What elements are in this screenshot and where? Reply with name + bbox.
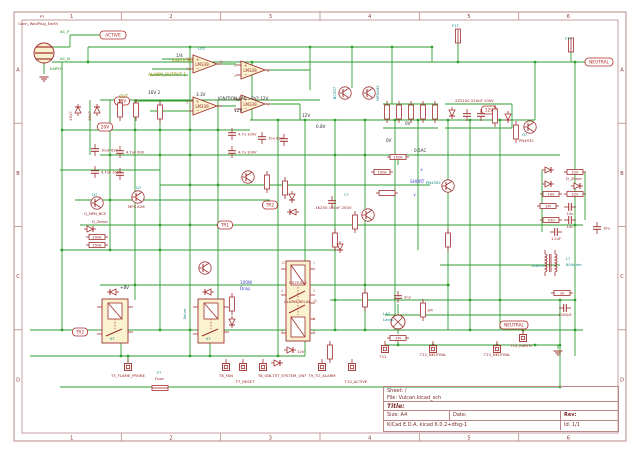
component-global-label[interactable]: NEUTRAL — [585, 58, 613, 66]
pin-number: 3 — [186, 101, 188, 105]
frame-column-label: 3 — [269, 436, 272, 442]
text-note[interactable]: 100W — [240, 280, 252, 285]
junction-dot — [447, 284, 449, 286]
component-screw-terminal[interactable] — [260, 359, 267, 371]
component-resistor[interactable]: 22k — [564, 170, 586, 175]
pin-number: 2 — [313, 330, 315, 334]
component-resistor[interactable]: 1M — [537, 204, 559, 209]
net-label[interactable]: 0.8V — [316, 124, 326, 129]
reference-label[interactable]: Q? — [92, 192, 97, 197]
title-block: Sheet: / File: Vulcan.kicad_sch Title: S… — [383, 386, 619, 432]
junction-dot — [189, 184, 191, 186]
component-global-label[interactable]: TR2 — [263, 201, 278, 209]
titleblock-rev: Rev: — [560, 411, 618, 420]
svg-text:TR1: TR1 — [220, 223, 230, 229]
pin-number: 13 — [186, 57, 190, 61]
frame-row-label: B — [620, 171, 624, 177]
pin-number: 1 — [313, 261, 315, 265]
pin-number: 6 — [234, 108, 236, 112]
component-transformer[interactable] — [545, 250, 557, 276]
svg-text:100k: 100k — [393, 155, 403, 160]
junction-dot — [159, 154, 161, 156]
value-label[interactable]: ALARM RELAY — [284, 299, 311, 304]
component-resistor[interactable] — [514, 121, 519, 143]
value-label[interactable]: D_Zener — [92, 219, 109, 224]
component-resistor[interactable] — [376, 191, 398, 196]
terminal-label[interactable]: T12_NEUTRAL — [419, 352, 447, 357]
junction-dot — [251, 61, 253, 63]
component-capacitor[interactable]: 10n — [564, 216, 576, 229]
svg-text:4.7uF 63V: 4.7uF 63V — [126, 151, 145, 155]
component-opamp-comparator[interactable]: +−LM339 — [188, 55, 222, 73]
hierarchical-label[interactable]: ALARM_OUTPUT 1 — [148, 72, 186, 77]
terminal-label[interactable]: T3_FLAME_PROBE — [110, 373, 146, 378]
junction-dot — [334, 329, 336, 331]
component-zener-diode[interactable] — [94, 104, 100, 116]
component-resistor[interactable] — [265, 171, 270, 193]
svg-text:10n: 10n — [567, 212, 574, 216]
frame-row-label: A — [16, 68, 20, 74]
reference-label[interactable]: C? — [344, 192, 349, 197]
value-label[interactable]: .1K250 160nF 250V — [314, 205, 352, 210]
component-diode[interactable] — [287, 209, 299, 215]
text-note[interactable]: ∧ — [420, 167, 423, 172]
reference-label[interactable]: PN4392 — [426, 180, 441, 185]
component-capacitor[interactable]: 1.2uF — [550, 228, 562, 241]
junction-dot — [334, 154, 336, 156]
junction-dot — [499, 119, 501, 121]
junction-dot — [351, 46, 353, 48]
value-label[interactable]: 12V — [297, 349, 305, 354]
terminal-label[interactable]: T13_NEUTRAL — [483, 352, 511, 357]
component-global-label[interactable]: TR1 — [218, 221, 233, 229]
junction-dot — [364, 284, 366, 286]
svg-text:12V: 12V — [485, 108, 493, 114]
titleblock-size: Size: A4 — [384, 411, 449, 420]
junction-dot — [109, 249, 111, 251]
component-ground-symbol[interactable] — [40, 77, 49, 81]
component-resistor[interactable]: 100k — [387, 155, 409, 160]
component-resistor[interactable]: 1k — [551, 291, 573, 296]
frame-column-label: 3 — [269, 14, 272, 20]
component-screw-terminal[interactable] — [319, 359, 326, 371]
component-screw-terminal[interactable] — [240, 359, 247, 371]
pin-name-label: AC_N — [60, 56, 70, 61]
junction-dot — [61, 249, 63, 251]
junction-dot — [574, 299, 576, 301]
frame-row-label: C — [16, 274, 20, 280]
net-label[interactable]: 0V — [405, 121, 411, 126]
terminal-label[interactable]: T9_TO_ALARM — [307, 373, 335, 378]
titleblock-date: Date: — [449, 411, 560, 420]
titleblock-file: File: Vulcan.kicad_sch — [387, 395, 615, 402]
junction-dot — [447, 119, 449, 121]
value-label[interactable]: P? — [40, 14, 44, 19]
frame-column-label: 4 — [368, 14, 371, 20]
svg-text:1.2uF: 1.2uF — [551, 237, 561, 241]
terminal-label[interactable]: T14_EARTH — [509, 343, 532, 348]
component-resistor[interactable]: 150k — [86, 243, 108, 248]
pin-number: 4 — [234, 74, 236, 78]
component-capacitor[interactable]: 10uF 63V — [91, 144, 119, 156]
pin-number: 10 — [219, 60, 223, 64]
frame-column-label: 2 — [169, 436, 172, 442]
component-ground-symbol[interactable] — [554, 351, 563, 355]
junction-dot — [189, 355, 191, 357]
component-diode[interactable] — [202, 289, 214, 295]
junction-dot — [469, 119, 471, 121]
junction-dot — [364, 119, 366, 121]
component-resistor[interactable]: 330 — [540, 218, 562, 223]
component-capacitor[interactable]: 4.7uF 100V — [91, 166, 122, 178]
junction-dot — [534, 344, 536, 346]
svg-text:LM339: LM339 — [243, 102, 257, 107]
component-transistor[interactable] — [132, 191, 144, 203]
pin-number: 7 — [281, 330, 283, 334]
svg-text:NEUTRAL: NEUTRAL — [589, 60, 609, 66]
component-screw-terminal[interactable] — [430, 341, 437, 353]
junction-dot — [127, 355, 129, 357]
component-global-label[interactable]: TR2 — [73, 328, 88, 336]
value-label[interactable]: MPS A26 — [128, 204, 145, 209]
reference-label[interactable]: K? — [206, 336, 211, 341]
pin-number: 5 — [234, 64, 236, 68]
junction-dot — [189, 129, 191, 131]
reference-label[interactable]: BC557 — [332, 86, 337, 99]
kicad-schematic-window: 112233445566AABBCCDDACTIVENEUTRALNEUTRAL… — [0, 0, 640, 453]
svg-text:TR2: TR2 — [75, 330, 85, 336]
net-label[interactable]: 12V — [302, 113, 310, 118]
junction-dot — [364, 329, 366, 331]
component-transistor[interactable] — [242, 171, 254, 183]
component-resistor[interactable] — [283, 177, 288, 199]
svg-text:TR2: TR2 — [265, 203, 275, 209]
component-capacitor[interactable]: 4.7u 100V — [228, 146, 257, 158]
value-label[interactable]: Fuse — [155, 376, 164, 381]
hierarchical-label[interactable]: OUT — [119, 94, 128, 99]
junction-dot — [431, 46, 433, 48]
reference-label[interactable]: MPSA92 — [375, 85, 380, 101]
junction-dot — [159, 329, 161, 331]
component-screw-terminal[interactable] — [494, 341, 501, 353]
junction-dot — [61, 129, 63, 131]
junction-dot — [109, 154, 111, 156]
frame-row-label: B — [16, 171, 20, 177]
component-resistor[interactable] — [158, 101, 163, 123]
component-resistor[interactable] — [134, 99, 139, 121]
junction-dot — [277, 355, 279, 357]
component-transistor[interactable] — [363, 87, 375, 99]
frame-row-label: D — [16, 377, 20, 383]
component-diode[interactable] — [107, 289, 119, 295]
component-diode[interactable] — [542, 181, 554, 187]
junction-dot — [574, 224, 576, 226]
junction-dot — [334, 119, 336, 121]
svg-text:150k: 150k — [92, 243, 102, 248]
junction-dot — [417, 119, 419, 121]
svg-text:1500pF: 1500pF — [558, 313, 572, 317]
component-opamp-comparator[interactable]: +−LM339 — [236, 61, 270, 79]
net-label[interactable]: IGNITION_FAIL=0V? 12V — [218, 96, 269, 101]
component-relay[interactable] — [193, 299, 229, 343]
frame-column-label: 1 — [70, 436, 73, 442]
component-fuse[interactable] — [456, 29, 461, 43]
titleblock-sheet: Sheet: / — [387, 388, 615, 395]
svg-text:NEUTRAL: NEUTRAL — [504, 323, 524, 329]
svg-text:10n: 10n — [567, 225, 574, 229]
net-label[interactable]: 3.3V — [196, 92, 206, 97]
component-screw-terminal[interactable] — [520, 330, 527, 342]
junction-dot — [559, 299, 561, 301]
component-resistor[interactable]: 10k — [540, 192, 562, 197]
junction-dot — [61, 329, 63, 331]
junction-dot — [159, 249, 161, 251]
svg-text:ACTIVE: ACTIVE — [105, 33, 121, 39]
svg-text:100k: 100k — [377, 170, 387, 175]
pin-number: 10 — [313, 299, 317, 303]
component-transistor[interactable] — [362, 209, 374, 221]
titleblock-title: Title: — [384, 402, 618, 411]
component-zener-diode[interactable] — [571, 183, 583, 189]
junction-dot — [309, 46, 311, 48]
text-note[interactable]: Drop — [240, 286, 250, 291]
component-transistor[interactable] — [442, 180, 454, 192]
terminal-label[interactable]: T6_FAN — [218, 373, 233, 378]
frame-column-label: 4 — [368, 436, 371, 442]
component-global-label[interactable]: 20V — [98, 123, 113, 131]
value-label[interactable]: 20V? — [68, 111, 73, 120]
frame-column-label: 6 — [567, 436, 570, 442]
svg-text:22k: 22k — [571, 170, 579, 175]
component-screw-terminal[interactable] — [382, 341, 389, 353]
junction-dot — [277, 119, 279, 121]
terminal-label[interactable]: T8_IGN-TET_SYSTEM_ON? — [257, 373, 306, 378]
component-resistor[interactable] — [446, 229, 451, 251]
svg-text:4.7u 100V: 4.7u 100V — [238, 151, 257, 155]
junction-dot — [189, 46, 191, 48]
terminal-label[interactable]: T11 — [378, 354, 387, 359]
reference-label[interactable]: Q? — [136, 185, 141, 190]
titleblock-id: Id: 1/1 — [560, 421, 618, 430]
svg-text:1M: 1M — [427, 308, 433, 313]
junction-dot — [159, 129, 161, 131]
frame-column-label: 5 — [467, 436, 470, 442]
svg-text:330: 330 — [547, 218, 555, 223]
junction-dot — [217, 184, 219, 186]
svg-text:10uF 63V: 10uF 63V — [101, 149, 119, 153]
reference-label[interactable]: F1? — [565, 36, 572, 41]
component-diode[interactable] — [289, 191, 295, 203]
frame-row-label: C — [620, 274, 624, 280]
junction-dot — [574, 61, 576, 63]
svg-text:LM339: LM339 — [195, 104, 209, 109]
pin-number: 7 — [234, 98, 236, 102]
terminal-label[interactable]: T10_ACTIVE — [344, 379, 368, 384]
junction-dot — [120, 355, 122, 357]
junction-dot — [87, 61, 89, 63]
junction-dot — [574, 329, 576, 331]
frame-column-label: 2 — [169, 14, 172, 20]
titleblock-kicad-version: KiCad E.D.A. kicad 6.0.2+dfsg-1 — [384, 421, 560, 430]
svg-text:LM339: LM339 — [243, 68, 257, 73]
component-resistor[interactable] — [353, 211, 358, 233]
component-diode[interactable] — [84, 226, 96, 232]
junction-dot — [334, 299, 336, 301]
junction-dot — [534, 61, 536, 63]
component-resistor[interactable]: 22k — [564, 192, 586, 197]
junction-dot — [189, 224, 191, 226]
svg-text:2n2: 2n2 — [404, 296, 411, 300]
pin-number: 4 — [281, 289, 283, 293]
junction-dot — [109, 199, 111, 201]
component-fuse[interactable] — [152, 386, 168, 391]
value-label[interactable]: 2Z2100 220nF 100V — [455, 98, 494, 103]
component-capacitor[interactable]: 2n2 — [394, 291, 411, 303]
component-resistor[interactable]: 1M — [421, 299, 433, 321]
component-diode[interactable] — [271, 360, 283, 366]
component-resistor[interactable] — [230, 293, 235, 315]
component-transistor[interactable] — [339, 87, 351, 99]
junction-dot — [189, 329, 191, 331]
net-label[interactable]: 0.5AC — [414, 148, 426, 153]
component-resistor[interactable]: 1M — [387, 336, 409, 341]
junction-dot — [364, 154, 366, 156]
net-label[interactable]: 16V 2 — [148, 90, 161, 95]
junction-dot — [394, 119, 396, 121]
value-label[interactable]: D_Zener — [566, 176, 583, 181]
component-zener-diode[interactable] — [75, 104, 81, 116]
reference-label[interactable]: U?C — [198, 46, 206, 51]
junction-dot — [391, 46, 393, 48]
junction-dot — [559, 344, 561, 346]
reference-label[interactable]: F? — [157, 370, 161, 375]
component-global-label[interactable]: ACTIVE — [100, 31, 126, 39]
value-label[interactable]: Conn_WallPlug_Earth — [18, 21, 58, 26]
component-capacitor[interactable]: 4.7uF 63V — [116, 146, 145, 158]
svg-text:10u: 10u — [603, 227, 610, 231]
junction-dot — [469, 299, 471, 301]
component-wall-plug-connector[interactable] — [34, 43, 54, 64]
component-diode[interactable] — [229, 316, 235, 328]
junction-dot — [189, 154, 191, 156]
pin-number: 12 — [281, 261, 285, 265]
frame-row-label: A — [620, 68, 624, 74]
junction-dot — [217, 129, 219, 131]
value-label[interactable]: 20V? — [87, 111, 92, 120]
svg-text:1M: 1M — [395, 336, 401, 341]
reference-label[interactable]: 14ohm — [531, 263, 545, 268]
reference-label[interactable]: F1? — [452, 23, 459, 28]
terminal-label[interactable]: T7_RESET — [235, 379, 255, 384]
junction-dot — [397, 344, 399, 346]
svg-text:4.7u 100V: 4.7u 100V — [238, 133, 257, 137]
net-label[interactable]: 0V — [386, 138, 392, 143]
reference-label[interactable]: K? — [110, 336, 115, 341]
pin-number: 11 — [186, 67, 190, 71]
junction-dot — [134, 129, 136, 131]
text-note[interactable]: SHORT — [410, 179, 425, 184]
pin-number: 8 — [267, 69, 269, 73]
component-diode[interactable] — [449, 107, 455, 119]
svg-text:1k: 1k — [560, 291, 565, 296]
component-capacitor[interactable]: 10n — [564, 203, 576, 216]
component-resistor[interactable]: 100k — [371, 170, 393, 175]
frame-column-label: 5 — [467, 14, 470, 20]
svg-text:100k: 100k — [92, 235, 102, 240]
junction-dot — [457, 61, 459, 63]
text-note[interactable]: ∨ — [413, 192, 416, 197]
value-label[interactable]: PN4932 — [519, 138, 534, 143]
component-diode[interactable] — [505, 111, 511, 123]
svg-text:LM339: LM339 — [195, 62, 209, 67]
junction-dot — [499, 299, 501, 301]
component-transistor[interactable] — [199, 262, 211, 274]
component-resistor[interactable] — [363, 289, 368, 311]
junction-dot — [304, 119, 306, 121]
junction-dot — [134, 284, 136, 286]
junction-dot — [469, 329, 471, 331]
svg-text:22k: 22k — [571, 192, 579, 197]
component-transistor[interactable] — [91, 197, 103, 209]
component-relay[interactable] — [97, 299, 133, 343]
component-global-label[interactable]: NEUTRAL — [500, 321, 528, 329]
component-screw-terminal[interactable] — [125, 359, 132, 371]
junction-dot — [209, 355, 211, 357]
component-screw-terminal[interactable] — [349, 359, 356, 371]
value-label[interactable]: Q_NPN_BCE — [84, 211, 107, 216]
reference-label[interactable]: Q? — [522, 132, 527, 137]
frame-column-label: 1 — [70, 14, 73, 20]
reference-label[interactable]: Lamp — [383, 317, 394, 322]
sheet-border-inner — [22, 20, 618, 433]
reference-label[interactable]: LA? — [383, 311, 390, 316]
svg-text:1M: 1M — [545, 204, 551, 209]
component-diode[interactable] — [542, 167, 554, 173]
pin-name-label: EARTH — [50, 66, 63, 71]
svg-text:10k: 10k — [547, 192, 555, 197]
pin-number: 1 — [267, 103, 269, 107]
component-resistor[interactable] — [333, 229, 338, 251]
component-capacitor[interactable]: 10u — [593, 222, 610, 234]
pin-number: 3 — [313, 289, 315, 293]
component-screw-terminal[interactable] — [223, 359, 230, 371]
component-resistor[interactable] — [328, 341, 333, 363]
net-label[interactable]: 1/4 — [176, 53, 183, 58]
component-resistor[interactable]: 100k — [86, 235, 108, 240]
frame-column-label: 6 — [567, 14, 570, 20]
net-label[interactable]: +8V — [120, 285, 129, 290]
pin-name-label: AC_P — [60, 29, 70, 34]
component-diode[interactable] — [284, 347, 296, 353]
svg-text:20V: 20V — [101, 125, 109, 131]
reference-label[interactable]: L? — [566, 256, 570, 261]
pin-number: 8 — [313, 317, 315, 321]
value-label[interactable]: DS2Y-SL2 — [289, 280, 308, 285]
junction-dot — [159, 224, 161, 226]
component-capacitor[interactable]: 10u 63V — [258, 132, 284, 144]
reference-label[interactable]: 800ohm — [566, 262, 582, 267]
frame-row-label: D — [620, 377, 624, 383]
reference-label[interactable]: 9ohm — [182, 308, 187, 319]
